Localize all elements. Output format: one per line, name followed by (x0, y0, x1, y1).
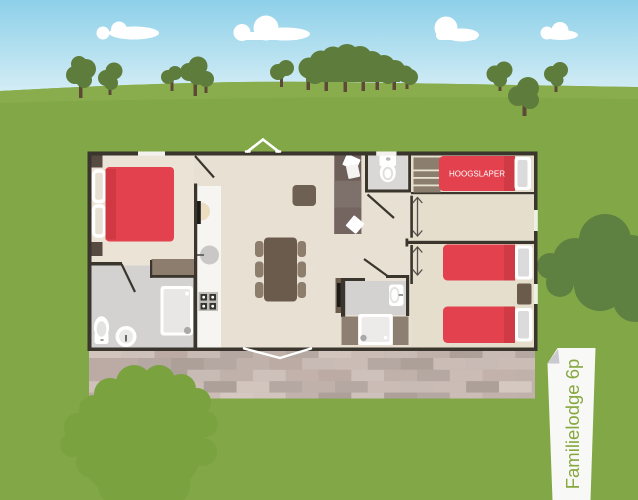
svg-text:HOOGSLAPER: HOOGSLAPER (449, 170, 505, 179)
svg-text:Familielodge 6p: Familielodge 6p (562, 359, 583, 490)
